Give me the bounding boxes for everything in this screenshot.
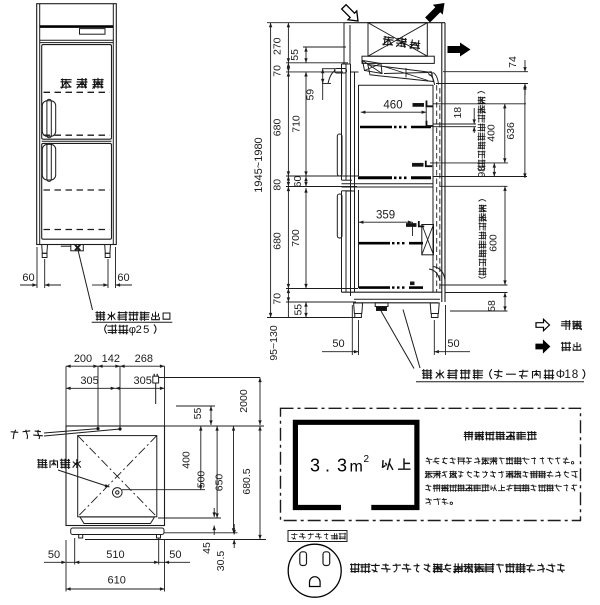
svg-text:74: 74 [507, 56, 519, 68]
svg-text:650: 650 [213, 474, 225, 492]
svg-text:500: 500 [196, 471, 208, 489]
svg-text:1: 1 [564, 368, 571, 381]
svg-text:m: m [350, 459, 363, 476]
svg-text:2000: 2000 [238, 389, 250, 413]
svg-text:460: 460 [383, 100, 402, 112]
svg-text:80: 80 [272, 179, 284, 191]
svg-text:95~130: 95~130 [268, 325, 280, 360]
svg-text:680: 680 [272, 119, 284, 137]
svg-text:55: 55 [289, 49, 301, 61]
svg-text:8: 8 [572, 368, 579, 381]
svg-text:400: 400 [181, 451, 193, 469]
svg-text:50: 50 [447, 338, 459, 350]
svg-text:400: 400 [486, 124, 498, 142]
svg-text:268: 268 [135, 353, 153, 365]
svg-text:200: 200 [74, 353, 92, 365]
svg-text:50: 50 [332, 338, 344, 350]
svg-text:3: 3 [337, 456, 347, 476]
svg-text:60: 60 [22, 272, 34, 284]
svg-text:70: 70 [272, 65, 284, 77]
svg-text:18: 18 [452, 107, 464, 119]
svg-text:700: 700 [290, 229, 302, 247]
svg-text:3: 3 [310, 456, 320, 476]
svg-text:359: 359 [376, 210, 395, 222]
svg-text:636: 636 [505, 122, 517, 140]
svg-text:60: 60 [292, 176, 304, 188]
svg-text:.: . [325, 456, 330, 476]
svg-text:50: 50 [48, 549, 60, 561]
svg-text:270: 270 [272, 37, 284, 55]
svg-text:45: 45 [201, 542, 213, 554]
svg-text:50: 50 [169, 549, 181, 561]
svg-text:680: 680 [272, 232, 284, 250]
svg-text:60: 60 [117, 272, 129, 284]
svg-text:600: 600 [488, 234, 500, 252]
svg-text:710: 710 [291, 115, 303, 133]
svg-text:30.5: 30.5 [215, 551, 227, 572]
svg-text:2: 2 [364, 454, 370, 465]
svg-text:510: 510 [106, 549, 124, 561]
svg-text:305: 305 [134, 375, 152, 387]
svg-text:305: 305 [80, 375, 98, 387]
svg-text:55: 55 [192, 408, 204, 420]
svg-text:5: 5 [143, 324, 149, 336]
svg-text:2: 2 [136, 324, 142, 336]
svg-text:610: 610 [108, 575, 126, 587]
svg-text:1945~1980: 1945~1980 [253, 137, 265, 192]
svg-text:142: 142 [102, 353, 120, 365]
svg-text:58: 58 [486, 300, 498, 312]
svg-text:55: 55 [293, 304, 305, 316]
svg-text:680.5: 680.5 [241, 468, 253, 494]
svg-text:70: 70 [272, 293, 284, 305]
